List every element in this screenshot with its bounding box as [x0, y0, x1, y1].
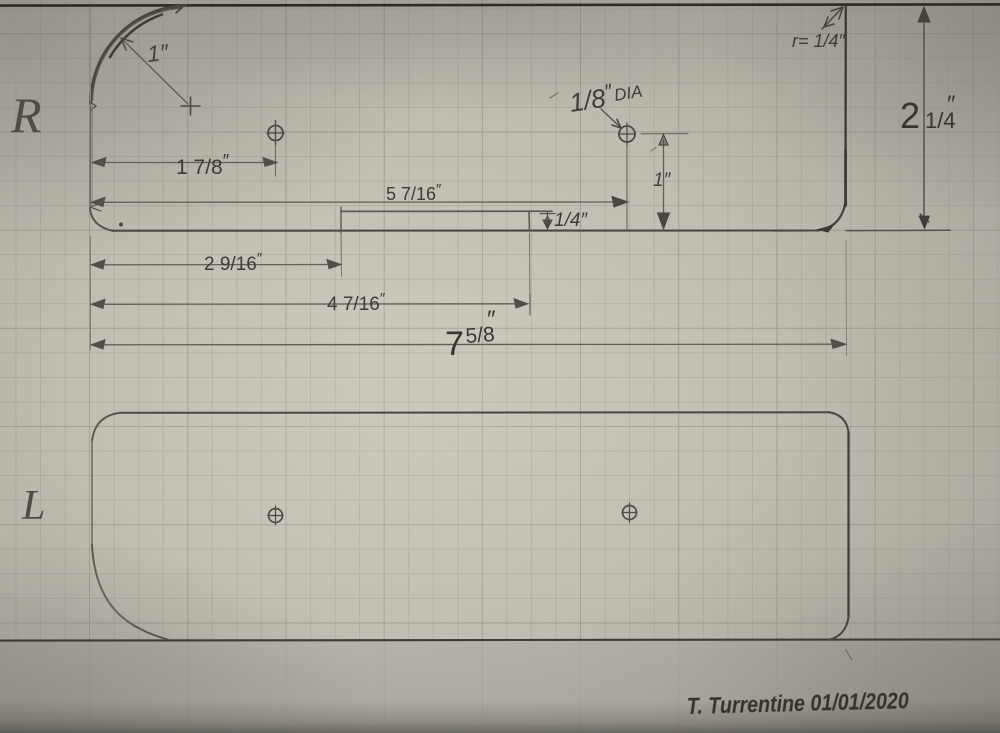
- svg-text:7: 7: [445, 325, 464, 363]
- svg-text:1/4″: 1/4″: [554, 210, 588, 231]
- svg-text:1″: 1″: [653, 170, 672, 191]
- svg-text:″: ″: [947, 91, 956, 118]
- svg-text:″: ″: [487, 306, 496, 333]
- svg-text:2 9/16″: 2 9/16″: [204, 250, 263, 275]
- svg-text:2: 2: [900, 95, 920, 136]
- svg-text:r= 1/4″: r= 1/4″: [792, 31, 846, 51]
- svg-text:1″: 1″: [146, 39, 170, 67]
- svg-text:5 7/16″: 5 7/16″: [386, 181, 442, 204]
- svg-text:1 7/8″: 1 7/8″: [176, 151, 230, 179]
- svg-text:L: L: [21, 483, 45, 529]
- svg-text:R: R: [10, 87, 42, 143]
- svg-text:4 7/16″: 4 7/16″: [327, 290, 386, 315]
